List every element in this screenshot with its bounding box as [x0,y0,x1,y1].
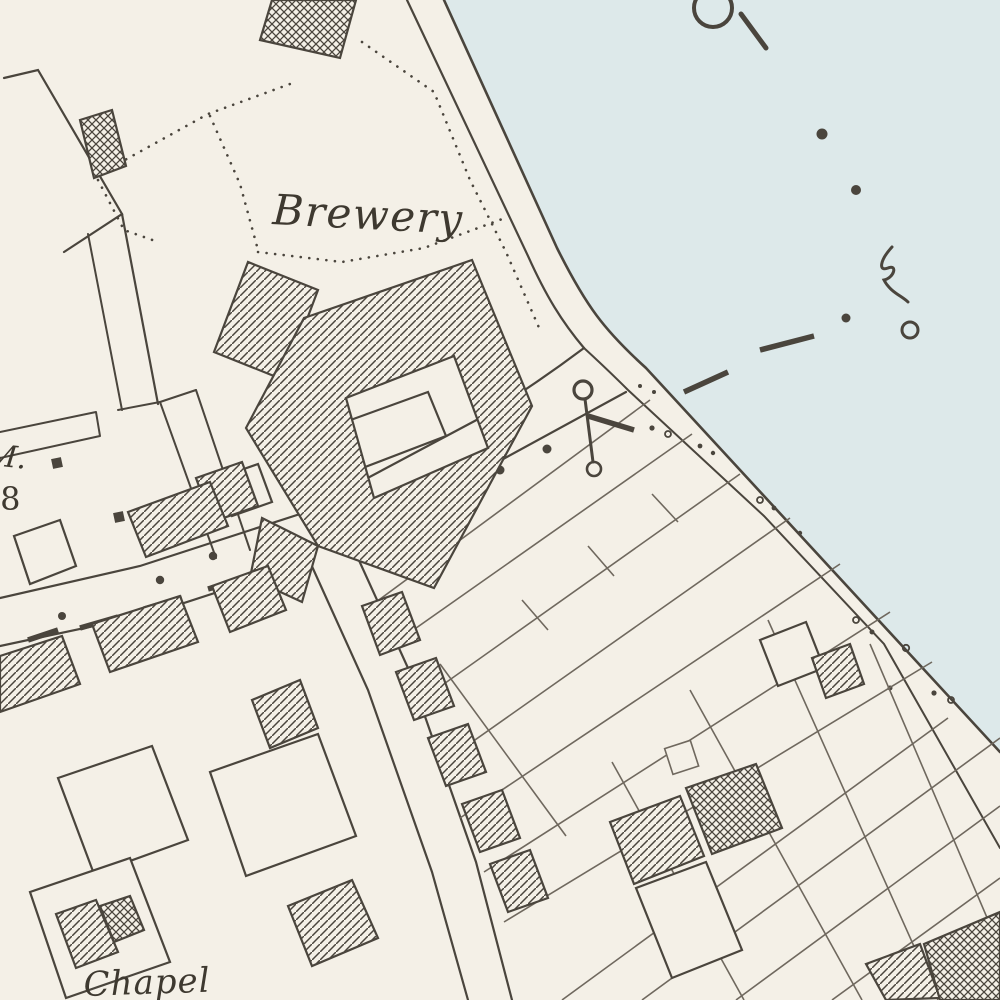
benchmark-m-label: M. [0,438,28,477]
glazed-building [80,110,126,178]
benchmark-squares [51,457,125,523]
detached-building [14,520,76,584]
block-building [210,734,356,876]
glazed-building [260,0,356,58]
flagstaff-symbol [574,381,601,476]
benchmark-value-label: ·8 [0,480,21,518]
block-building [58,746,188,874]
map-canvas[interactable]: Brewery M. ·8 Chapel [0,0,1000,1000]
historic-town-plan: Brewery M. ·8 Chapel [0,0,1000,1000]
chapel-label: Chapel [83,961,211,1000]
brewery-label: Brewery [270,185,464,244]
